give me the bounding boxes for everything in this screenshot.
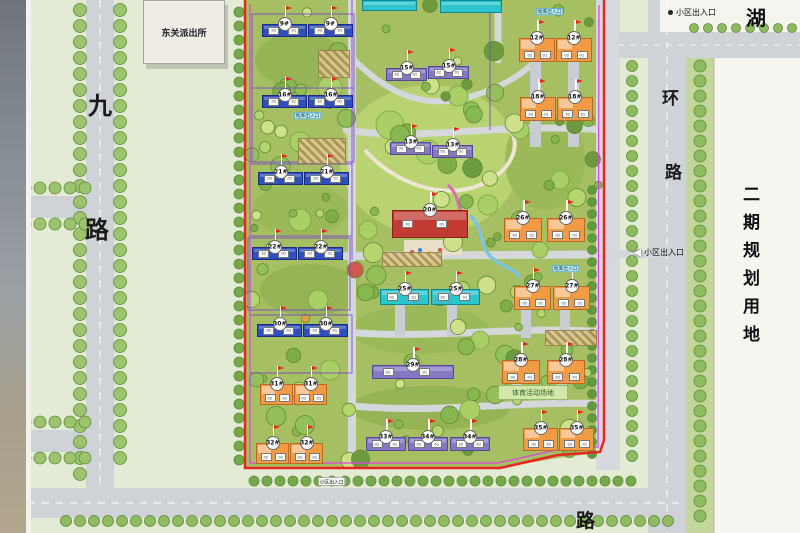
unit-label: 01 — [279, 394, 290, 402]
entrance-arrow-icon — [634, 249, 641, 257]
flag-icon — [533, 268, 535, 279]
building-number-badge: 27# — [565, 279, 579, 293]
entrance-label-right: 小区出入口 — [634, 247, 684, 258]
building-number-badge: 30# — [319, 317, 333, 331]
unit-label: 02 — [309, 327, 320, 335]
building-block — [440, 0, 502, 13]
garage-ramp-hatch — [298, 138, 346, 164]
building-number-badge: 12# — [567, 31, 581, 45]
unit-label: 02 — [525, 110, 536, 118]
flag-icon — [307, 425, 309, 436]
flag-icon — [577, 410, 579, 421]
unit-label: 01 — [535, 299, 546, 307]
building-number-badge: 28# — [559, 353, 573, 367]
unit-label: 01 — [408, 293, 419, 301]
building-34: 34#0201 — [450, 437, 490, 451]
unit-label: 02 — [402, 220, 413, 228]
lake-label: 湖 — [746, 2, 766, 31]
flag-icon — [449, 48, 451, 59]
building-number-badge: 26# — [559, 211, 573, 225]
building-15: 15#0201 — [428, 66, 469, 79]
unit-label: 01 — [524, 373, 535, 381]
building-12: 12#0201 — [556, 38, 592, 62]
flag-icon — [521, 342, 523, 353]
building-number-badge: 31# — [304, 377, 318, 391]
building-number-badge: 30# — [273, 317, 287, 331]
unit-label: 01 — [569, 231, 580, 239]
unit-label: 02 — [261, 453, 272, 461]
flag-icon — [280, 306, 282, 317]
building-number-badge: 34# — [463, 430, 477, 444]
flag-icon — [407, 50, 409, 61]
building-32: 32#0201 — [290, 443, 323, 464]
police-station-label: 东关派出所 — [143, 0, 225, 64]
road-name-bottom: 路 — [576, 506, 595, 533]
building-number-badge: 29# — [406, 358, 420, 372]
flag-icon — [311, 366, 313, 377]
building-number-badge: 9# — [324, 17, 338, 31]
flag-icon — [277, 366, 279, 377]
site-plan-map: 东关派出所 二期规划用地 湖 九 路 环 路 路 小区出入口 小区出入口 小区出… — [0, 0, 800, 533]
unit-label: 02 — [524, 51, 535, 59]
building-25: 25#0201 — [431, 289, 480, 305]
unit-label: 01 — [313, 394, 324, 402]
unit-label: 01 — [574, 299, 585, 307]
building-29: 29#0201 — [372, 365, 454, 379]
photo-edge-strip — [0, 0, 31, 533]
building-13: 13#0201 — [432, 145, 473, 158]
unit-label: 01 — [459, 293, 470, 301]
garage-entrance-label: 地库出入口 — [294, 112, 321, 119]
building-18: 18#0201 — [557, 97, 593, 121]
unit-label: 01 — [578, 110, 589, 118]
building-26: 26#0201 — [547, 218, 585, 242]
building-number-badge: 22# — [268, 240, 282, 254]
building-number-badge: 9# — [278, 17, 292, 31]
building-21: 21#0201 — [304, 172, 349, 185]
building-31: 31#0201 — [294, 384, 327, 405]
building-number-badge: 35# — [534, 421, 548, 435]
building-number-badge: 13# — [404, 135, 418, 149]
flag-icon — [428, 419, 430, 430]
building-22: 22#0201 — [252, 247, 297, 260]
road-name-left-bottom: 路 — [85, 210, 109, 245]
building-15: 15#0201 — [386, 68, 427, 81]
building-number-badge: 35# — [570, 421, 584, 435]
entrance-label-bottom: 小区出入口 — [318, 477, 345, 486]
flag-icon — [541, 410, 543, 421]
building-number-badge: 18# — [531, 90, 545, 104]
road-name-right-mid: 路 — [665, 158, 682, 183]
unit-label: 02 — [564, 440, 575, 448]
entrance-label-top: 小区出入口 — [668, 7, 716, 18]
building-number-badge: 16# — [278, 88, 292, 102]
unit-label: 02 — [268, 98, 279, 106]
building-28: 28#0201 — [547, 360, 585, 384]
building-number-badge: 20# — [423, 203, 437, 217]
building-number-badge: 12# — [530, 31, 544, 45]
unit-label: 02 — [552, 373, 563, 381]
unit-label: 02 — [263, 327, 274, 335]
unit-label: 02 — [258, 250, 269, 258]
flag-icon — [453, 127, 455, 138]
building-22: 22#0201 — [298, 247, 343, 260]
building-number-badge: 32# — [266, 436, 280, 450]
building-27: 27#0201 — [553, 286, 590, 310]
flag-icon — [405, 271, 407, 282]
flag-icon — [331, 77, 333, 88]
building-number-badge: 31# — [270, 377, 284, 391]
flag-icon — [285, 6, 287, 17]
building-27: 27#0201 — [514, 286, 551, 310]
building-31: 31#0201 — [260, 384, 293, 405]
unit-label: 02 — [438, 293, 449, 301]
building-number-badge: 28# — [514, 353, 528, 367]
unit-label: 02 — [507, 373, 518, 381]
building-18: 18#0201 — [520, 97, 556, 121]
building-33: 33#0201 — [366, 437, 406, 451]
flag-icon — [386, 419, 388, 430]
unit-label: 02 — [561, 51, 572, 59]
building-block — [362, 0, 417, 11]
unit-label: 01 — [275, 453, 286, 461]
building-16: 16#0201 — [308, 95, 353, 108]
flag-icon — [321, 229, 323, 240]
road-name-right-top: 环 — [662, 84, 679, 109]
building-21: 21#0201 — [258, 172, 303, 185]
flag-icon — [575, 79, 577, 90]
building-9: 9#0201 — [308, 24, 353, 37]
flag-icon — [470, 419, 472, 430]
flag-icon — [430, 192, 432, 203]
building-28: 28#0201 — [502, 360, 540, 384]
unit-label: 01 — [541, 110, 552, 118]
building-number-badge: 22# — [314, 240, 328, 254]
flag-icon — [327, 154, 329, 165]
building-number-badge: 34# — [421, 430, 435, 444]
phase2-planning-label: 二期规划用地 — [737, 185, 762, 385]
unit-label: 01 — [569, 373, 580, 381]
building-35: 35#0201 — [559, 428, 594, 451]
building-number-badge: 26# — [516, 211, 530, 225]
flag-icon — [574, 20, 576, 31]
building-16: 16#0201 — [262, 95, 307, 108]
building-number-badge: 18# — [568, 90, 582, 104]
garage-ramp-hatch — [382, 252, 442, 267]
flag-icon — [537, 20, 539, 31]
building-30: 30#0201 — [257, 324, 302, 337]
unit-label: 02 — [558, 299, 569, 307]
unit-label: 02 — [387, 293, 398, 301]
building-35: 35#0201 — [523, 428, 558, 451]
unit-label: 02 — [383, 368, 394, 376]
unit-label: 02 — [264, 175, 275, 183]
unit-label: 01 — [419, 368, 430, 376]
building-number-badge: 21# — [274, 165, 288, 179]
building-20: 20#0201 — [392, 210, 468, 238]
unit-label: 01 — [543, 440, 554, 448]
garage-entrance-label: 地库出入口 — [552, 265, 579, 272]
flag-icon — [566, 342, 568, 353]
building-number-badge: 27# — [526, 279, 540, 293]
flag-icon — [456, 271, 458, 282]
unit-label: 02 — [299, 394, 310, 402]
road-name-left-top: 九 — [88, 86, 112, 121]
unit-label: 01 — [579, 440, 590, 448]
garage-ramp-hatch — [318, 50, 350, 78]
flag-icon — [413, 347, 415, 358]
flag-icon — [275, 229, 277, 240]
unit-label: 02 — [552, 231, 563, 239]
unit-label: 02 — [268, 27, 279, 35]
flag-icon — [523, 200, 525, 211]
building-number-badge: 15# — [400, 61, 414, 75]
garage-entrance-label: 地库出入口 — [536, 8, 563, 15]
unit-label: 02 — [265, 394, 276, 402]
flag-icon — [273, 425, 275, 436]
building-30: 30#0201 — [303, 324, 348, 337]
building-34: 34#0201 — [408, 437, 448, 451]
unit-label: 02 — [314, 27, 325, 35]
building-number-badge: 21# — [320, 165, 334, 179]
building-25: 25#0201 — [380, 289, 429, 305]
building-13: 13#0201 — [390, 142, 431, 155]
unit-label: 02 — [310, 175, 321, 183]
unit-label: 02 — [562, 110, 573, 118]
unit-label: 02 — [519, 299, 530, 307]
building-9: 9#0201 — [262, 24, 307, 37]
building-number-badge: 25# — [449, 282, 463, 296]
unit-label: 02 — [295, 453, 306, 461]
building-12: 12#0201 — [519, 38, 555, 62]
building-number-badge: 16# — [324, 88, 338, 102]
flag-icon — [281, 154, 283, 165]
building-number-badge: 15# — [442, 59, 456, 73]
building-32: 32#0201 — [256, 443, 289, 464]
unit-label: 01 — [577, 51, 588, 59]
building-26: 26#0201 — [504, 218, 542, 242]
unit-label: 01 — [436, 220, 447, 228]
unit-label: 01 — [540, 51, 551, 59]
entrance-dot-icon — [668, 10, 673, 15]
flag-icon — [411, 124, 413, 135]
unit-label: 02 — [314, 98, 325, 106]
building-number-badge: 25# — [398, 282, 412, 296]
sports-field-label: 体育活动场地 — [498, 385, 568, 400]
flag-icon — [285, 77, 287, 88]
unit-label: 01 — [526, 231, 537, 239]
flag-icon — [538, 79, 540, 90]
unit-label: 02 — [509, 231, 520, 239]
building-number-badge: 33# — [379, 430, 393, 444]
building-number-badge: 32# — [300, 436, 314, 450]
unit-label: 02 — [528, 440, 539, 448]
flag-icon — [331, 6, 333, 17]
flag-icon — [566, 200, 568, 211]
flag-icon — [326, 306, 328, 317]
building-number-badge: 13# — [446, 138, 460, 152]
unit-label: 01 — [309, 453, 320, 461]
unit-label: 02 — [304, 250, 315, 258]
